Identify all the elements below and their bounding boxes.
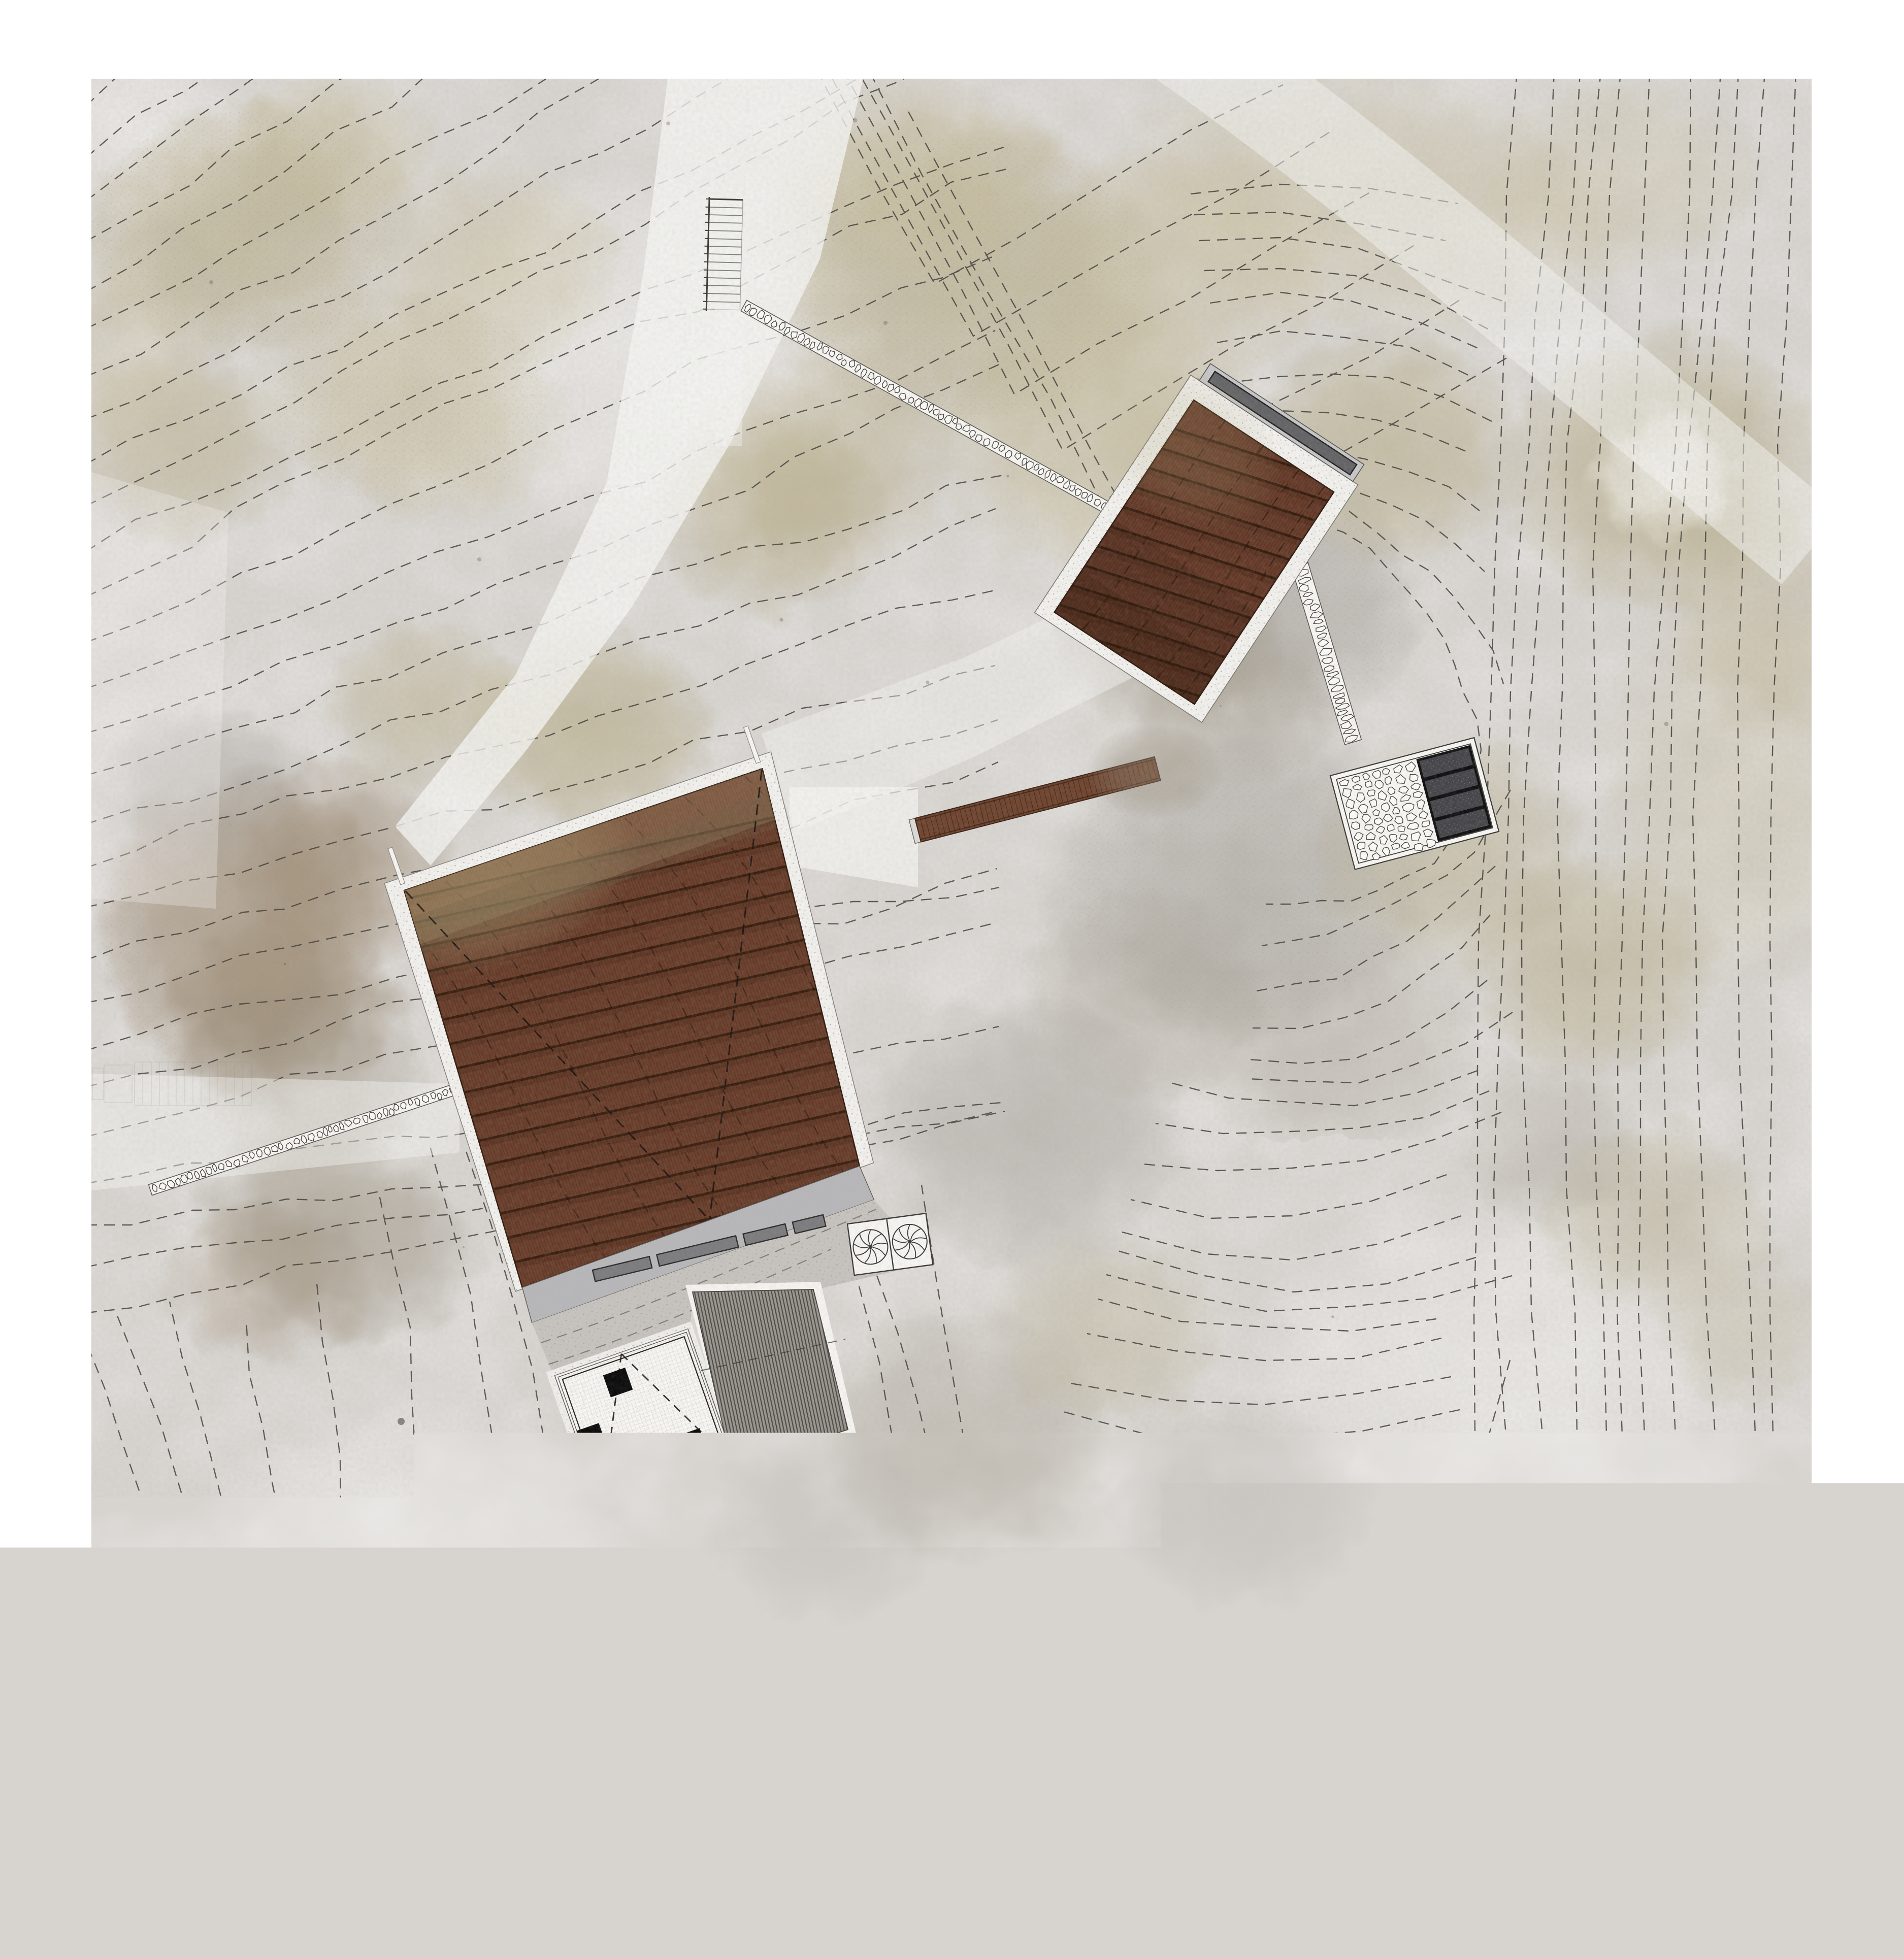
svg-text:4: 4 xyxy=(443,1847,453,1869)
svg-text:2: 2 xyxy=(393,1847,404,1869)
svg-text:0: 0 xyxy=(344,1847,355,1869)
svg-text:8: 8 xyxy=(541,1847,552,1869)
svg-text:Planta Cubiertas: Planta Cubiertas xyxy=(95,1816,307,1855)
svg-text:6: 6 xyxy=(492,1847,503,1869)
svg-text:10: 10 xyxy=(585,1847,607,1869)
